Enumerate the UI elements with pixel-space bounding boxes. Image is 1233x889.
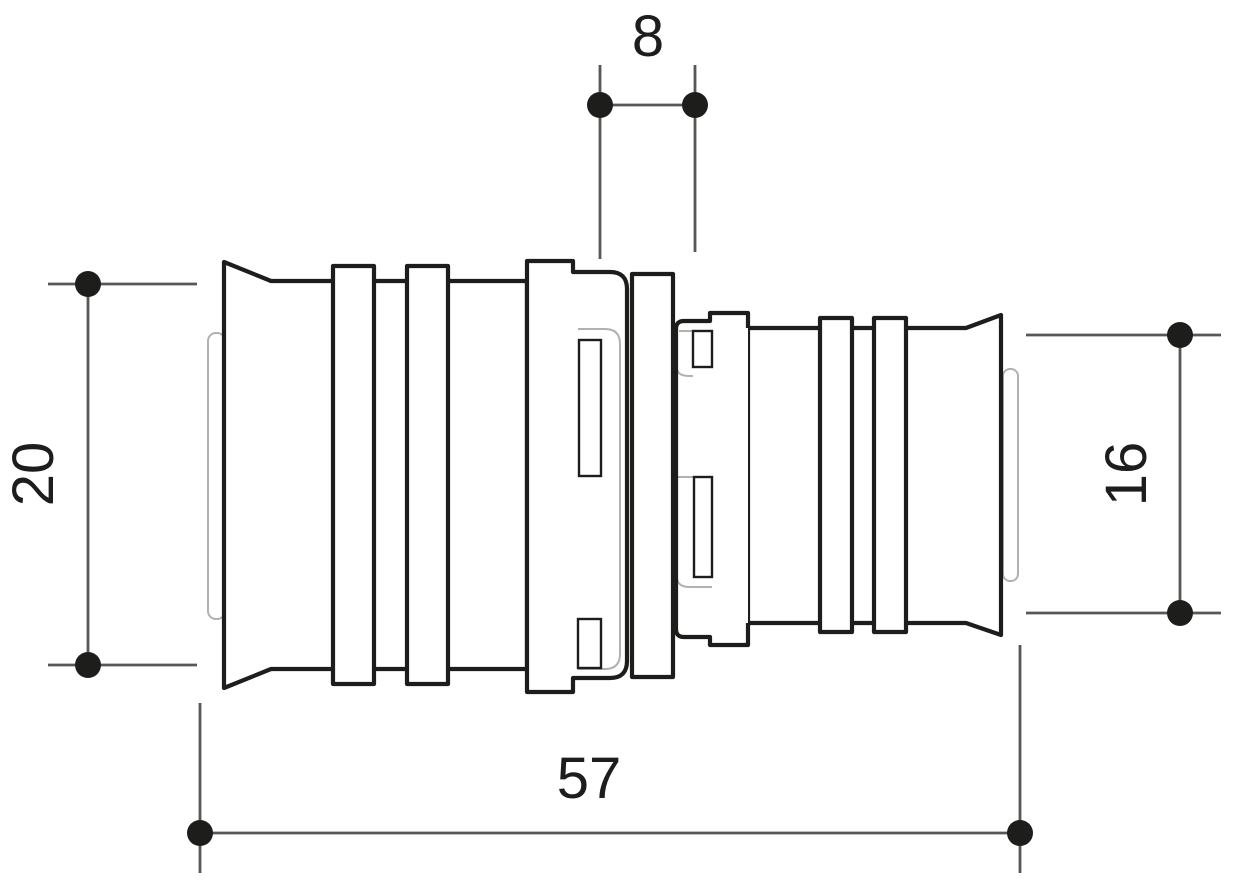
left-sleeve-ring-2 [407, 266, 448, 684]
dimension-dot [75, 271, 101, 297]
dimension-dot [587, 92, 613, 118]
dimension-top-width: 8 [587, 4, 708, 259]
dimension-label-right: 16 [1094, 442, 1159, 507]
center-ring [632, 274, 673, 677]
collar-window-lower [578, 619, 601, 668]
dimension-dot [682, 92, 708, 118]
reducer-coupling-drawing: 8 20 16 57 [0, 0, 1233, 889]
dimension-dot [1167, 322, 1193, 348]
fitting-body [208, 261, 1018, 692]
technical-drawing-canvas: 8 20 16 57 [0, 0, 1233, 889]
left-sleeve-ring-1 [333, 266, 374, 684]
collar-window-upper [579, 340, 601, 476]
dimension-right-diameter: 16 [1026, 322, 1221, 626]
dimension-left-diameter: 20 [1, 271, 197, 678]
right-pipe-stub [1003, 369, 1018, 581]
dimension-label-top: 8 [632, 4, 664, 69]
sleeve-window-upper [693, 331, 712, 367]
right-sleeve-ring-2 [874, 318, 906, 632]
dimension-label-bottom: 57 [557, 746, 622, 811]
right-sleeve-ring-1 [820, 318, 852, 632]
dimension-dot [187, 820, 213, 846]
dimension-dot [1167, 600, 1193, 626]
sleeve-window-lower [694, 477, 712, 577]
dimension-dot [75, 652, 101, 678]
dimension-dot [1007, 820, 1033, 846]
dimension-label-left: 20 [1, 442, 66, 507]
